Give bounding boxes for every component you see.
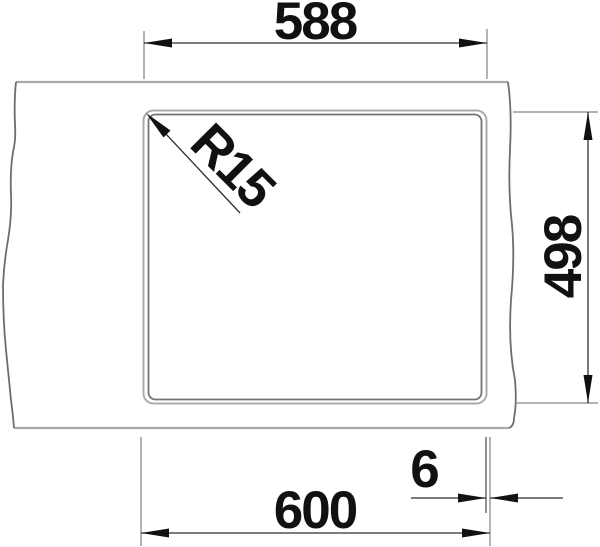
counter-right-break-edge: [508, 82, 516, 428]
extension-lines: [141, 29, 598, 546]
arrow-498-up-icon: [584, 112, 593, 140]
dimension-right-height-label: 498: [534, 215, 593, 298]
dimension-bottom-width-label: 600: [274, 481, 357, 540]
arrow-588-right-icon: [459, 39, 487, 48]
arrow-6-inward-right-icon: [458, 494, 486, 503]
arrowheads: [141, 39, 593, 538]
dimension-lines: [141, 43, 588, 533]
counter-left-break-edge: [3, 82, 16, 428]
dimension-top-width-label: 588: [274, 0, 357, 51]
arrow-radius-leader-icon: [146, 113, 171, 138]
arrow-6-inward-left-icon: [490, 494, 518, 503]
arrow-600-left-icon: [141, 529, 169, 538]
arrow-600-right-icon: [462, 529, 490, 538]
dimension-edge-offset-label: 6: [410, 440, 438, 499]
dimension-corner-radius-label: R15: [179, 113, 286, 220]
technical-drawing: 588 498 600 6 R15: [0, 0, 600, 547]
arrow-498-down-icon: [584, 375, 593, 403]
countertop-outline: [3, 82, 516, 428]
arrow-588-left-icon: [144, 39, 172, 48]
